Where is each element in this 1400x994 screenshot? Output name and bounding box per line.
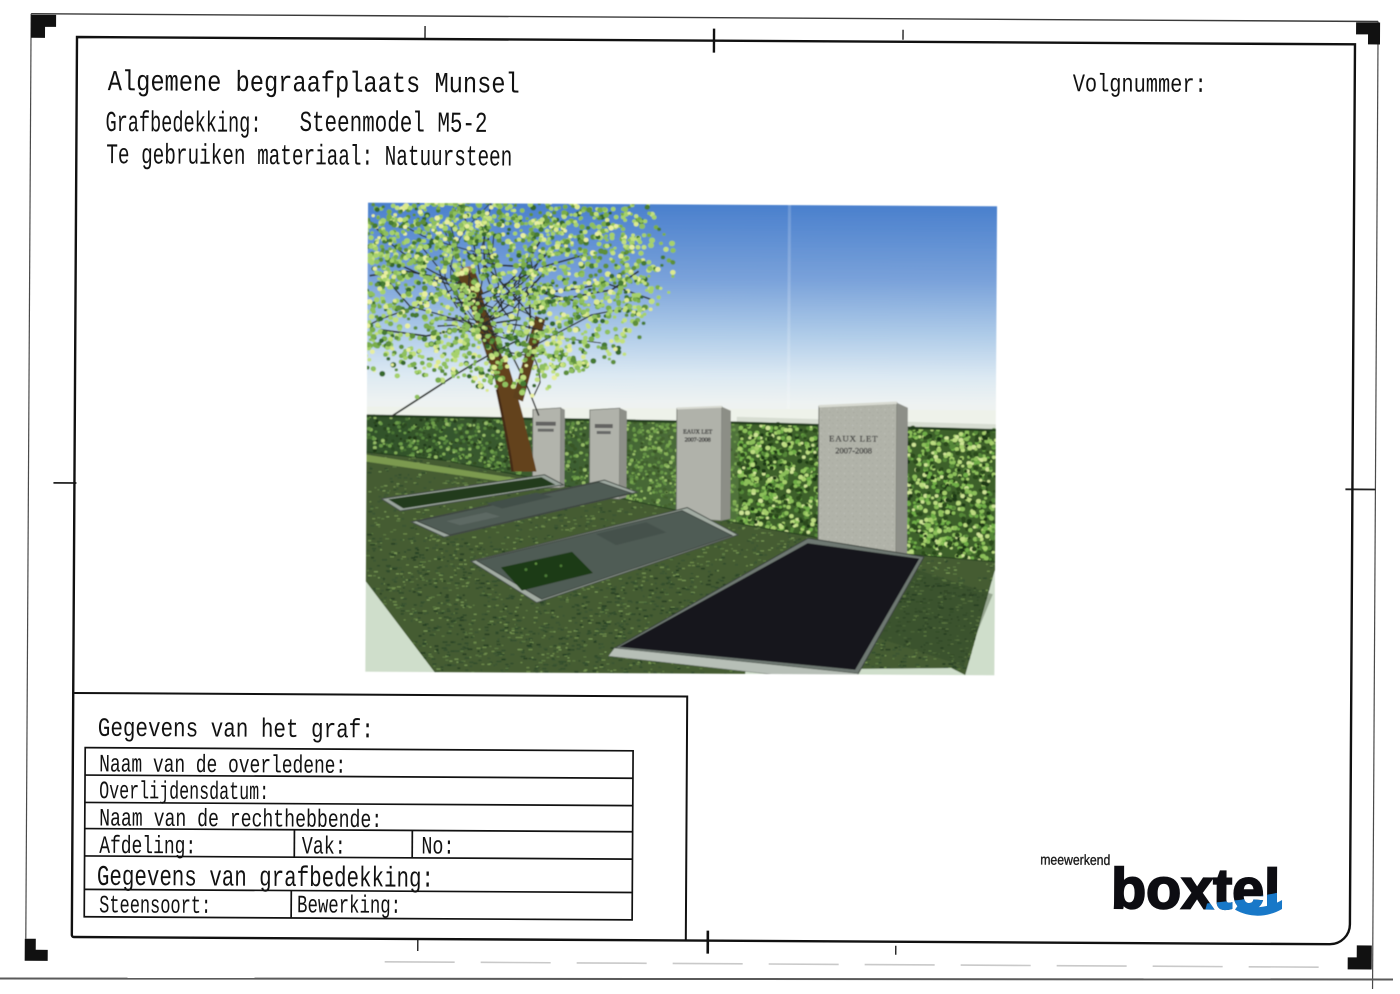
- svg-text:Overlijdensdatum:: Overlijdensdatum:: [99, 777, 269, 807]
- svg-text:Te gebruiken materiaal: Natuur: Te gebruiken materiaal: Natuursteen: [106, 139, 512, 174]
- svg-text:No:: No:: [421, 832, 454, 861]
- svg-text:Grafbedekking:: Grafbedekking:: [105, 107, 261, 141]
- svg-text:2007-2008: 2007-2008: [835, 445, 872, 455]
- svg-text:EAUX LET: EAUX LET: [829, 433, 878, 443]
- svg-text:Gegevens van grafbedekking:: Gegevens van grafbedekking:: [97, 861, 434, 896]
- svg-text:Naam van de rechthebbende:: Naam van de rechthebbende:: [99, 804, 382, 835]
- svg-text:Vak:: Vak:: [302, 833, 346, 862]
- svg-text:2007-2008: 2007-2008: [685, 438, 711, 444]
- svg-text:Volgnummer:: Volgnummer:: [1073, 70, 1207, 100]
- svg-text:Steensoort:: Steensoort:: [99, 891, 211, 921]
- svg-text:EAUX LET: EAUX LET: [683, 429, 713, 435]
- svg-text:Gegevens van het graf:: Gegevens van het graf:: [98, 714, 374, 746]
- svg-text:meewerkend: meewerkend: [1040, 853, 1110, 869]
- svg-text:Naam van de overledene:: Naam van de overledene:: [99, 750, 346, 780]
- svg-text:Steenmodel M5-2: Steenmodel M5-2: [299, 107, 487, 141]
- svg-text:Algemene begraafplaats Munsel: Algemene begraafplaats Munsel: [108, 66, 520, 101]
- svg-text:Bewerking:: Bewerking:: [297, 891, 401, 921]
- svg-text:Afdeling:: Afdeling:: [99, 832, 196, 862]
